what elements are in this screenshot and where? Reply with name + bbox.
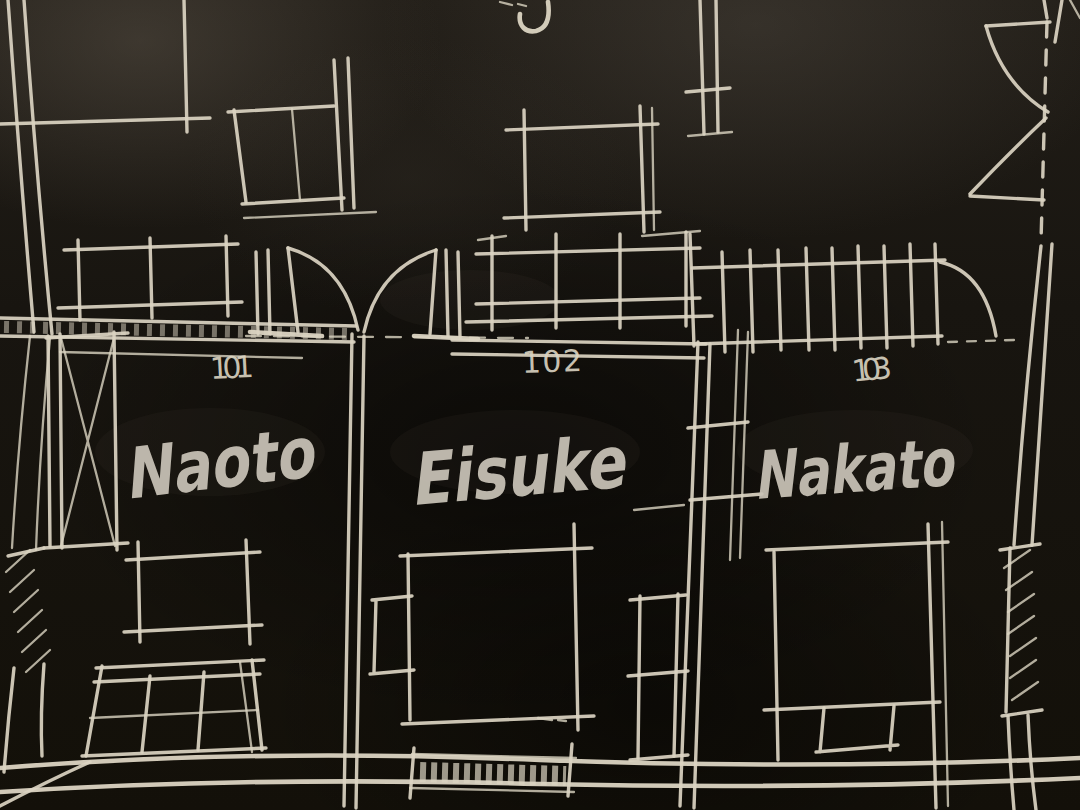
room-102-bed — [370, 524, 594, 730]
room-102-number: 102 — [521, 343, 584, 380]
left-shaft-x-brace — [44, 332, 128, 550]
room-101-number: 101 — [209, 349, 257, 386]
upper-mid-wall — [334, 58, 354, 210]
upper-wall-x700 — [686, 0, 732, 136]
wall-102-103 — [680, 330, 762, 808]
left-wall-hatch — [6, 548, 50, 672]
room-103-number: 103 — [850, 350, 895, 389]
left-balcony-railing — [58, 236, 242, 320]
chalkboard-floor-plan: 101 102 103 Naoto Eisuke Nakato — [0, 0, 1080, 810]
wall-101-102 — [344, 334, 364, 808]
right-double-door-symbol — [970, 22, 1050, 200]
room-103-bed — [764, 542, 948, 760]
room-101-table — [124, 540, 262, 644]
room-102-occupant-name: Eisuke — [406, 419, 631, 522]
bottom-sill-102 — [410, 744, 576, 798]
bottom-exterior-wall — [0, 718, 1080, 806]
room-103-occupant-name: Nakato — [750, 424, 958, 515]
room-101-bench — [82, 660, 266, 756]
upper-table — [504, 106, 660, 232]
right-window-hatch — [1000, 544, 1042, 716]
room-102-wardrobe — [628, 505, 688, 760]
chalk-linework — [0, 0, 1080, 810]
corridor-wall-left — [0, 318, 356, 358]
floor-plan-sketch: 101 102 103 Naoto Eisuke Nakato — [0, 0, 1080, 810]
partial-letter-descender — [500, 2, 549, 31]
